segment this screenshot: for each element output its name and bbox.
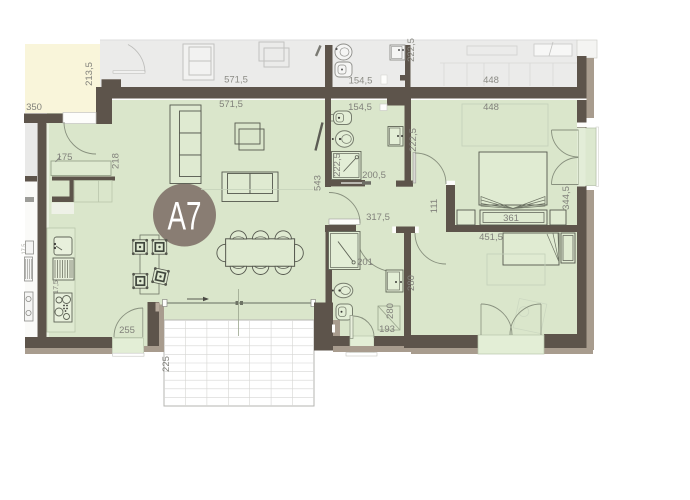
- svg-text:154,5: 154,5: [348, 102, 372, 113]
- svg-text:448: 448: [483, 102, 499, 113]
- svg-text:222,5: 222,5: [332, 153, 343, 177]
- svg-text:451,5: 451,5: [479, 232, 503, 243]
- svg-text:344,5: 344,5: [561, 186, 572, 210]
- svg-text:17,5: 17,5: [53, 280, 60, 294]
- svg-text:361: 361: [503, 213, 519, 224]
- svg-text:A7: A7: [168, 195, 202, 239]
- svg-text:154,5: 154,5: [349, 76, 373, 87]
- svg-text:543: 543: [313, 175, 324, 191]
- svg-text:200,5: 200,5: [362, 170, 386, 181]
- svg-text:201: 201: [357, 257, 373, 268]
- svg-text:193: 193: [379, 324, 395, 335]
- svg-text:222,5: 222,5: [406, 38, 417, 62]
- svg-text:448: 448: [483, 75, 499, 86]
- svg-text:222,5: 222,5: [408, 128, 419, 152]
- svg-text:280: 280: [406, 275, 417, 291]
- svg-text:218: 218: [111, 153, 122, 169]
- svg-text:255: 255: [119, 325, 135, 336]
- svg-text:225: 225: [161, 356, 172, 372]
- svg-text:350: 350: [26, 102, 42, 113]
- svg-text:571,5: 571,5: [224, 75, 248, 86]
- svg-text:571,5: 571,5: [219, 99, 243, 110]
- svg-text:111: 111: [429, 199, 440, 213]
- svg-text:213,5: 213,5: [84, 62, 95, 86]
- svg-text:280: 280: [385, 303, 396, 319]
- svg-text:317,5: 317,5: [366, 212, 390, 223]
